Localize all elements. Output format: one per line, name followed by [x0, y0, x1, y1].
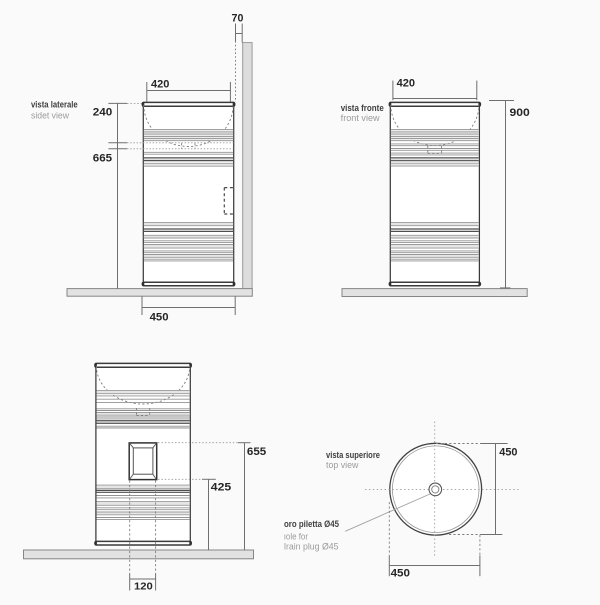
svg-text:420: 420: [151, 78, 169, 90]
svg-text:70: 70: [232, 13, 244, 25]
svg-text:vista laterale: vista laterale: [31, 100, 78, 110]
svg-text:vista fronte: vista fronte: [341, 103, 384, 113]
svg-text:sidet view: sidet view: [31, 111, 69, 121]
svg-text:425: 425: [211, 482, 231, 494]
svg-text:900: 900: [510, 107, 530, 119]
svg-text:665: 665: [93, 153, 112, 165]
svg-text:120: 120: [134, 580, 153, 592]
svg-text:450: 450: [391, 567, 410, 579]
svg-text:450: 450: [150, 312, 169, 324]
svg-text:450: 450: [499, 446, 517, 458]
svg-text:655: 655: [247, 446, 266, 458]
svg-text:lrain plug Ø45: lrain plug Ø45: [284, 541, 339, 551]
svg-text:vista superiore: vista superiore: [326, 450, 380, 460]
svg-text:oro piletta Ø45: oro piletta Ø45: [284, 519, 339, 529]
svg-text:ıole for: ıole for: [284, 531, 308, 541]
svg-text:front view: front view: [341, 113, 380, 123]
svg-text:top view: top view: [326, 460, 359, 470]
svg-text:420: 420: [397, 78, 415, 90]
svg-text:240: 240: [93, 107, 113, 119]
